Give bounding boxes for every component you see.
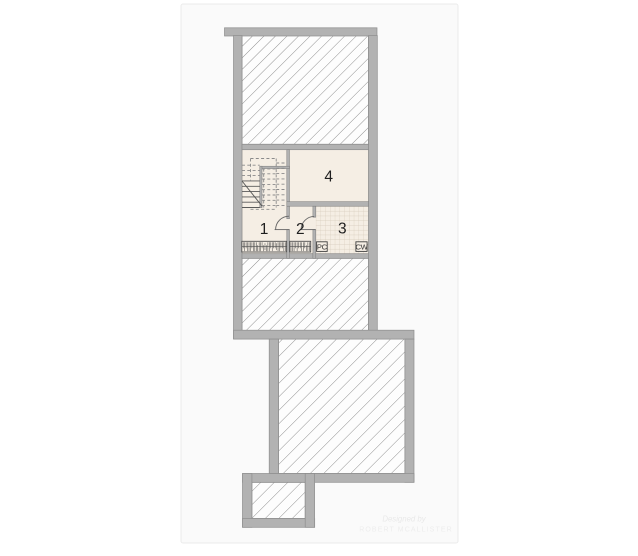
svg-text:3: 3 [338,221,347,238]
svg-text:4: 4 [324,169,333,186]
svg-text:2: 2 [296,221,305,238]
svg-text:1: 1 [260,221,269,238]
svg-text:ROBERT MCALLISTER: ROBERT MCALLISTER [359,527,453,534]
svg-text:Designed by: Designed by [382,515,426,524]
svg-text:PC: PC [317,243,328,252]
svg-text:CW: CW [355,243,368,252]
